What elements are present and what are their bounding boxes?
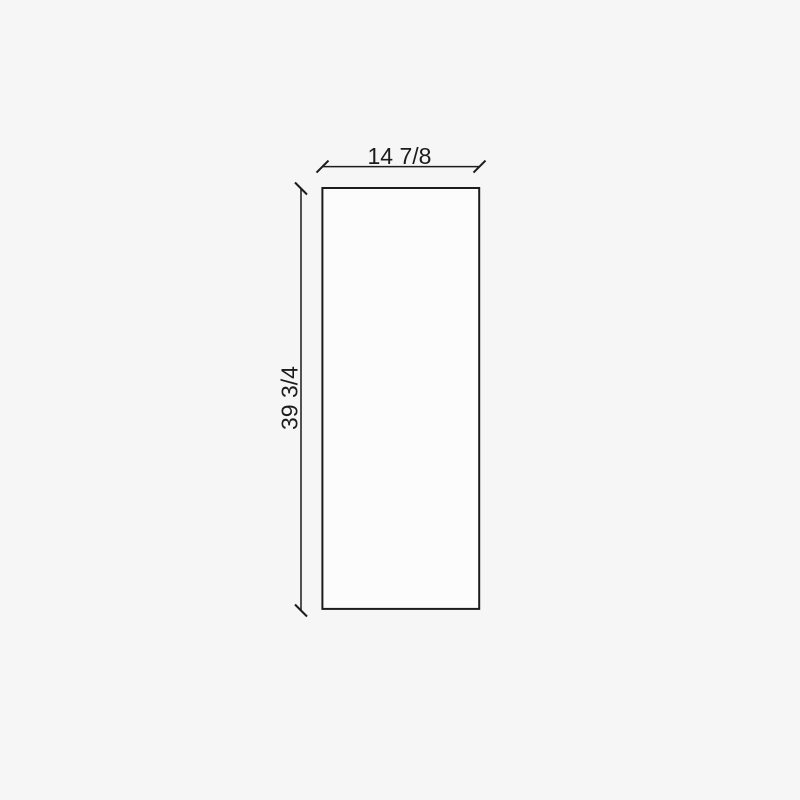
svg-text:14 7/8: 14 7/8 xyxy=(368,143,432,169)
svg-text:39 3/4: 39 3/4 xyxy=(277,366,303,430)
